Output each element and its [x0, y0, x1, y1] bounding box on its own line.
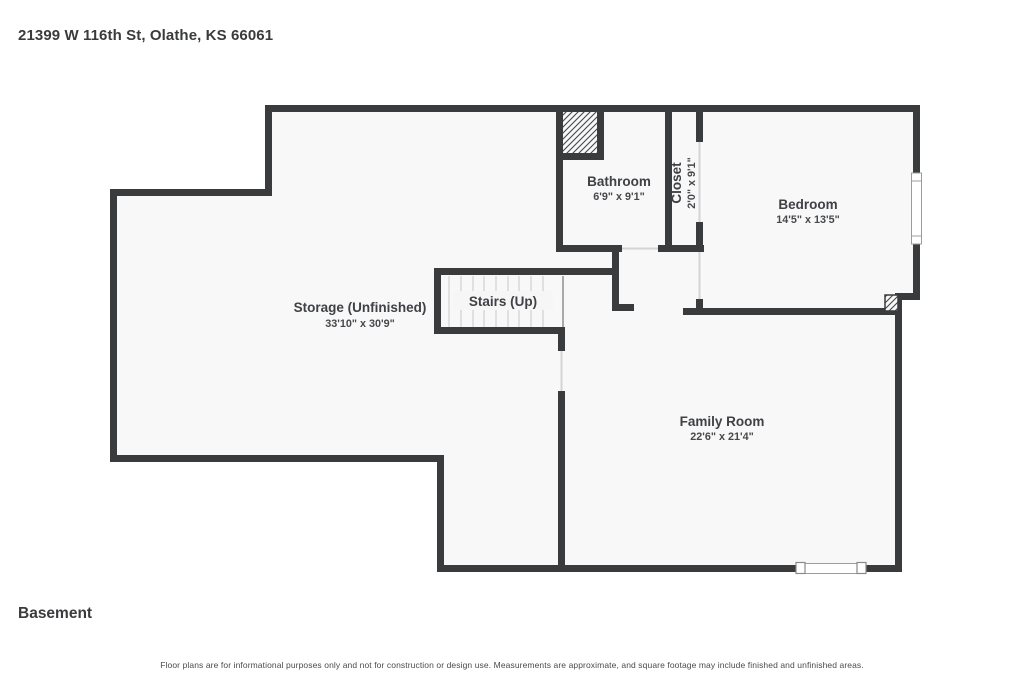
wall-bathroom-left	[556, 105, 563, 252]
wall-hatch-bottom	[556, 153, 604, 160]
storage-dims: 33'10" x 30'9"	[325, 318, 394, 330]
wall-bedroom-left-mid	[696, 222, 703, 252]
bedroom-dims: 14'5" x 13'5"	[776, 214, 839, 226]
floor-plan-drawing: Bathroom 6'9" x 9'1" Closet 2'0" x 9'1" …	[0, 0, 1024, 682]
familyroom-dims: 22'6" x 21'4"	[690, 431, 753, 443]
wall-stairs-left	[434, 268, 441, 334]
wall-bedroom-left-top	[696, 105, 703, 142]
bathroom-hatched-area	[563, 112, 597, 153]
closet-dims: 2'0" x 9'1"	[686, 157, 698, 208]
familyroom-label: Family Room	[680, 414, 765, 429]
property-address: 21399 W 116th St, Olathe, KS 66061	[18, 27, 273, 44]
stairs-label: Stairs (Up)	[469, 294, 537, 309]
wall-hall-foot	[612, 304, 634, 311]
closet-label: Closet	[669, 162, 684, 204]
wall-stairs-bottom	[434, 327, 565, 334]
bedroom-window	[912, 173, 922, 244]
corner-post-hatched	[885, 295, 898, 311]
bedroom-label: Bedroom	[778, 197, 837, 212]
storage-label: Storage (Unfinished)	[294, 300, 427, 315]
disclaimer-text: Floor plans are for informational purpos…	[0, 660, 1024, 670]
floor-level-label: Basement	[18, 605, 92, 623]
outer-walls	[114, 109, 917, 569]
wall-familyroom-left-upper	[558, 327, 565, 351]
wall-hall-vertical	[612, 245, 619, 311]
wall-stairs-top	[434, 268, 619, 275]
familyroom-window	[796, 563, 866, 574]
wall-hatch-right	[597, 108, 604, 160]
wall-familyroom-left-lower	[558, 391, 565, 572]
wall-familyroom-top	[683, 308, 902, 315]
bathroom-dims: 6'9" x 9'1"	[593, 191, 644, 203]
bathroom-label: Bathroom	[587, 174, 651, 189]
floor-plan-page: 21399 W 116th St, Olathe, KS 66061	[0, 0, 1024, 682]
